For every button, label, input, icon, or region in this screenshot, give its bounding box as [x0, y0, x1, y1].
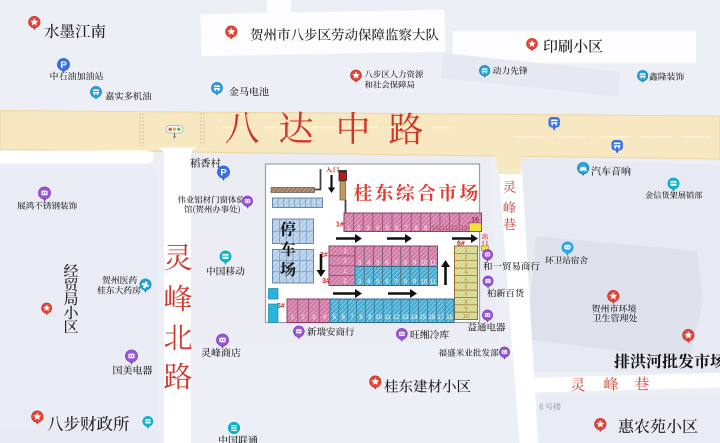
- svg-text:10: 10: [420, 280, 427, 286]
- svg-text:9: 9: [464, 307, 467, 313]
- svg-text:11: 11: [430, 261, 437, 267]
- svg-text:13: 13: [402, 315, 409, 321]
- svg-text:17: 17: [437, 315, 444, 321]
- svg-text:1: 1: [464, 248, 467, 254]
- svg-text:12: 12: [451, 226, 458, 232]
- svg-text:11: 11: [384, 315, 391, 321]
- svg-text:6: 6: [539, 403, 544, 412]
- svg-text:15: 15: [420, 315, 427, 321]
- svg-text:14: 14: [411, 315, 418, 321]
- svg-text:12: 12: [393, 315, 400, 321]
- svg-text:3: 3: [464, 263, 467, 269]
- svg-text:8: 8: [464, 299, 467, 305]
- svg-text:10: 10: [463, 314, 469, 320]
- svg-text:2: 2: [464, 255, 467, 261]
- svg-text:5: 5: [464, 277, 467, 283]
- svg-text:7: 7: [464, 292, 467, 298]
- svg-text:18: 18: [446, 315, 453, 321]
- svg-text:10: 10: [375, 315, 382, 321]
- svg-text:11: 11: [442, 226, 449, 232]
- svg-text:10: 10: [432, 226, 439, 232]
- svg-text:1#: 1#: [336, 222, 344, 229]
- svg-text:13: 13: [461, 226, 468, 232]
- svg-text:16: 16: [429, 315, 436, 321]
- svg-text:4: 4: [464, 270, 467, 276]
- svg-text:16: 16: [471, 217, 479, 224]
- svg-text:11: 11: [430, 280, 437, 286]
- svg-text:3#: 3#: [322, 278, 330, 285]
- svg-text:10: 10: [420, 261, 427, 267]
- svg-text:6: 6: [464, 285, 467, 291]
